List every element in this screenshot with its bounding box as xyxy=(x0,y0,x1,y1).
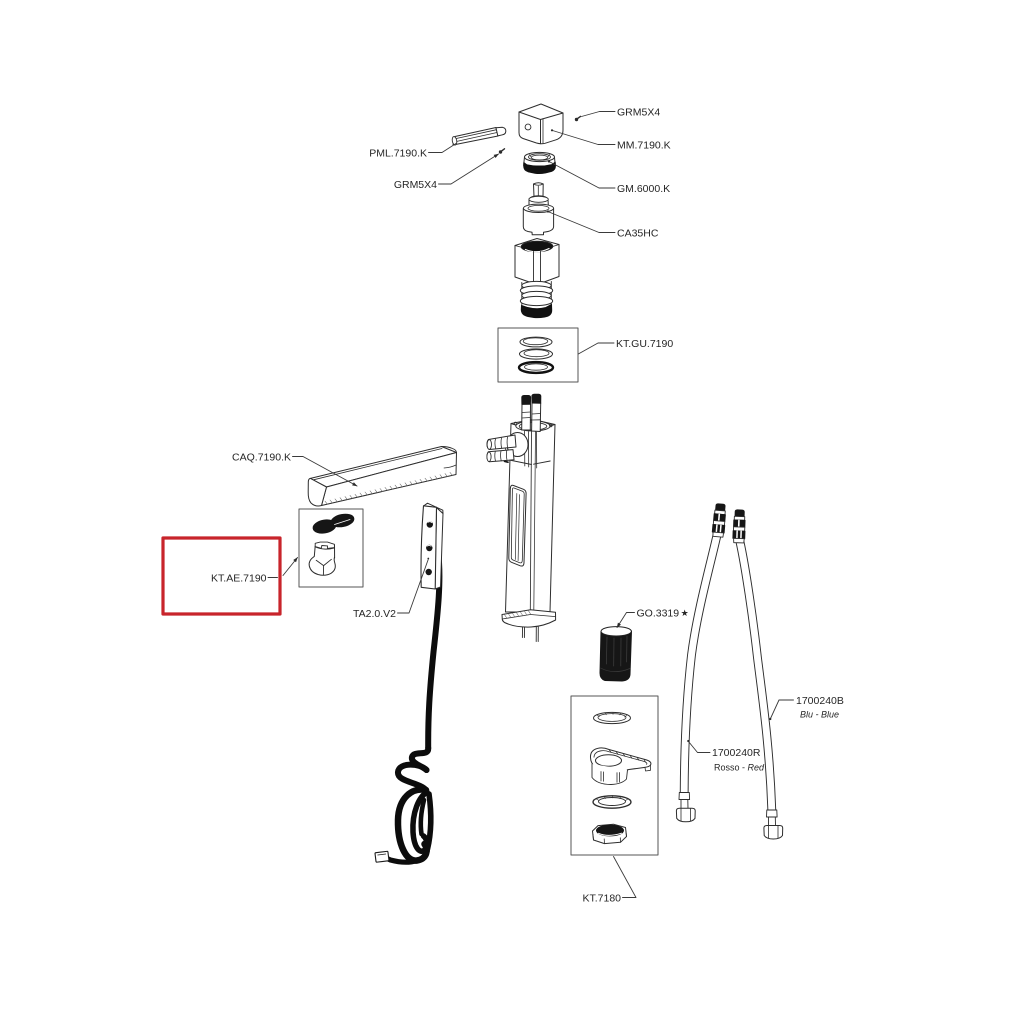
svg-text:GM.6000.K: GM.6000.K xyxy=(617,183,670,195)
svg-text:GO.3319★: GO.3319★ xyxy=(637,608,689,620)
svg-text:GRM5X4: GRM5X4 xyxy=(394,179,437,191)
svg-text:KT.AE.7190: KT.AE.7190 xyxy=(211,573,267,585)
svg-text:CAQ.7190.K: CAQ.7190.K xyxy=(232,452,291,464)
svg-text:1700240B: 1700240B xyxy=(796,695,844,707)
svg-text:1700240R: 1700240R xyxy=(712,747,761,759)
svg-text:PML.7190.K: PML.7190.K xyxy=(369,148,427,160)
svg-text:KT.GU.7190: KT.GU.7190 xyxy=(616,338,673,350)
svg-text:Rosso - Red: Rosso - Red xyxy=(714,763,765,773)
svg-text:KT.7180: KT.7180 xyxy=(582,893,621,905)
svg-text:MM.7190.K: MM.7190.K xyxy=(617,140,671,152)
svg-text:TA2.0.V2: TA2.0.V2 xyxy=(353,608,396,620)
svg-text:GRM5X4: GRM5X4 xyxy=(617,107,660,119)
svg-text:CA35HC: CA35HC xyxy=(617,228,659,240)
svg-text:Blu - Blue: Blu - Blue xyxy=(800,710,839,720)
